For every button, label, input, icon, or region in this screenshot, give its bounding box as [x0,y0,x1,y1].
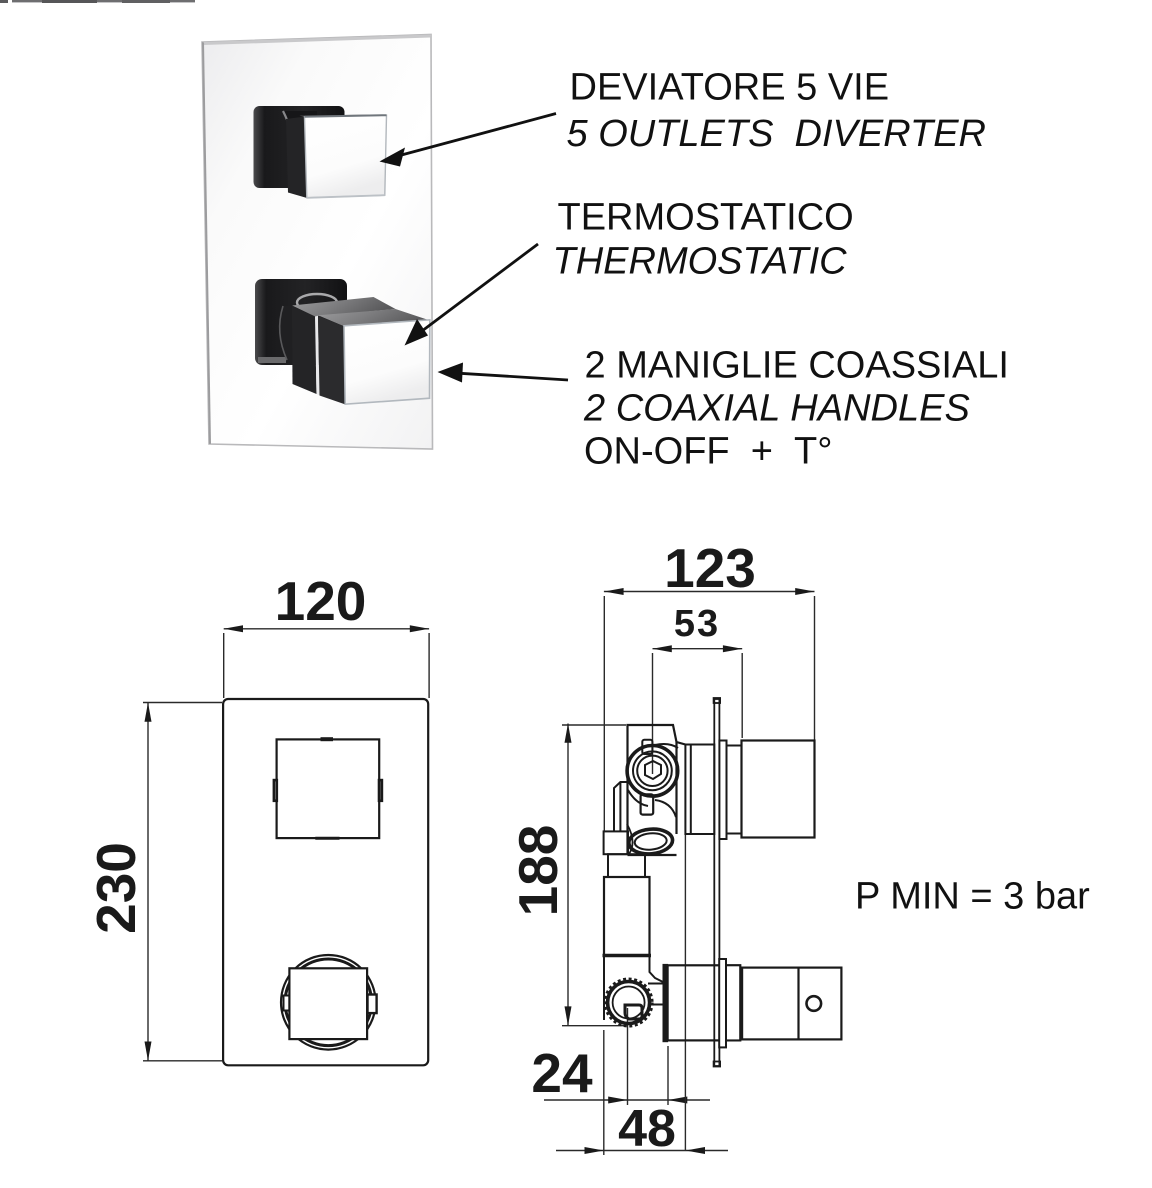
svg-text:53: 53 [674,603,720,645]
svg-text:TERMOSTATICO: TERMOSTATICO [558,197,854,239]
svg-text:5 OUTLETS DIVERTER: 5 OUTLETS DIVERTER [567,113,987,155]
svg-text:48: 48 [618,1100,676,1158]
svg-text:DEVIATORE 5 VIE: DEVIATORE 5 VIE [570,67,890,109]
svg-text:P MIN = 3 bar: P MIN = 3 bar [855,876,1090,918]
svg-text:24: 24 [531,1042,593,1104]
svg-text:188: 188 [507,825,569,917]
svg-text:120: 120 [275,570,367,632]
svg-text:THERMOSTATIC: THERMOSTATIC [553,241,848,283]
svg-text:2 COAXIAL HANDLES: 2 COAXIAL HANDLES [583,388,970,430]
svg-text:230: 230 [85,842,147,934]
svg-text:ON-OFF + T°: ON-OFF + T° [584,431,832,473]
svg-text:123: 123 [664,537,756,599]
svg-text:2 MANIGLIE COASSIALI: 2 MANIGLIE COASSIALI [585,345,1009,387]
